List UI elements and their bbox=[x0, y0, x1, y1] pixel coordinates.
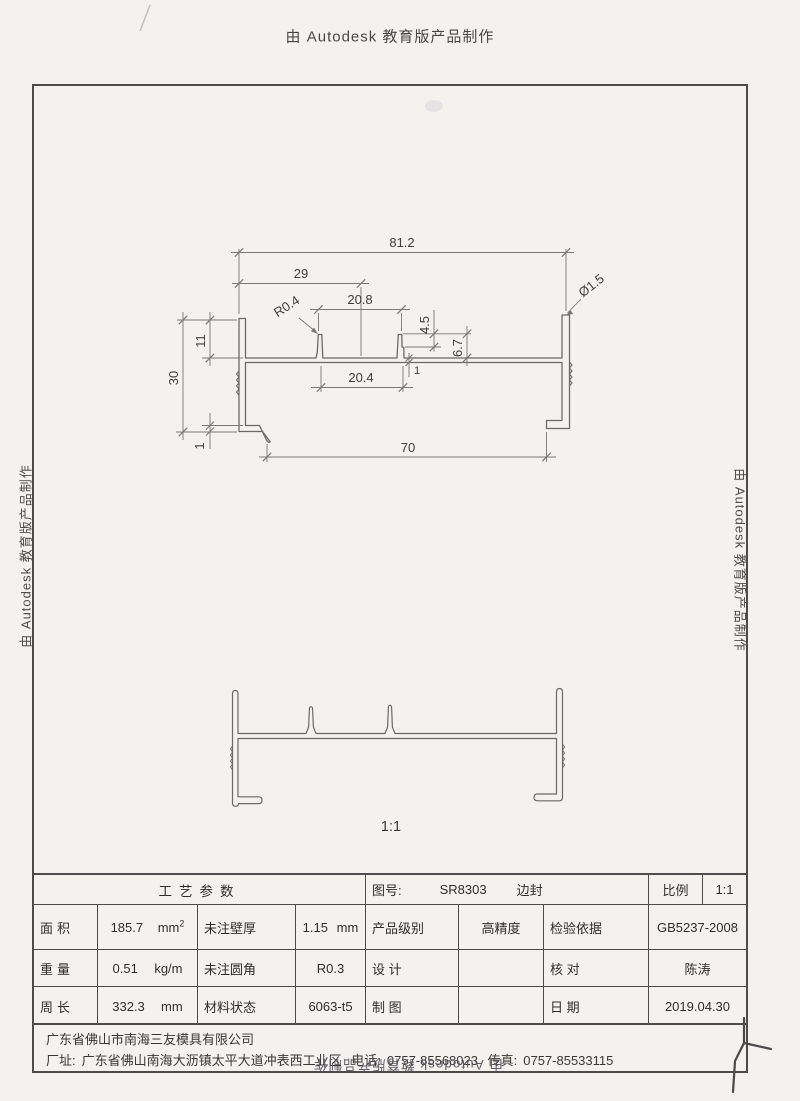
dim-label-rib-step-height: 4.5 bbox=[417, 316, 432, 334]
material-state-value: 6063-t5 bbox=[308, 999, 352, 1014]
date-label: 日 期 bbox=[550, 997, 580, 1016]
dim-label-bottom-width: 70 bbox=[401, 440, 415, 455]
dim-hole-diameter: Ø1.5 bbox=[566, 271, 607, 316]
dim-label-channel-inner-width: 20.4 bbox=[348, 370, 373, 385]
area-value: 185.7 bbox=[111, 920, 144, 935]
designer-label: 设 计 bbox=[372, 959, 402, 978]
wall-thickness-unit: mm bbox=[337, 920, 359, 935]
cell-design-label: 设 计 bbox=[366, 950, 459, 987]
cell-perimeter-label: 周长 bbox=[34, 987, 98, 1025]
perimeter-label: 周长 bbox=[40, 997, 74, 1016]
cell-process-params: 工艺参数 bbox=[34, 875, 366, 905]
cell-grade-label: 产品级别 bbox=[366, 905, 459, 950]
dim-channel-outer-width: 20.8 bbox=[310, 292, 410, 331]
dim-corner-radius: R0.4 bbox=[271, 292, 318, 334]
cell-weight-label: 重量 bbox=[34, 950, 98, 987]
wall-thickness-value: 1.15 bbox=[303, 920, 328, 935]
wall-thickness-label: 未注壁厚 bbox=[204, 918, 256, 937]
inspection-basis-value: GB5237-2008 bbox=[657, 920, 738, 935]
cell-scale-label: 比例 bbox=[649, 875, 703, 905]
address-label: 厂址: bbox=[46, 1053, 76, 1068]
profile-actual-size-view bbox=[231, 689, 565, 807]
cell-wall-label: 未注壁厚 bbox=[198, 905, 296, 950]
date-value: 2019.04.30 bbox=[665, 999, 730, 1014]
cell-date-value: 2019.04.30 bbox=[649, 987, 746, 1025]
dim-label-overall-width: 81.2 bbox=[389, 235, 414, 250]
view-scale-caption: 1:1 bbox=[381, 819, 401, 835]
process-params-label: 工艺参数 bbox=[159, 880, 241, 900]
cell-fillet-value: R0.3 bbox=[296, 950, 366, 987]
checker-label: 核 对 bbox=[550, 959, 580, 978]
cell-inspect-value: GB5237-2008 bbox=[649, 905, 746, 950]
product-grade-value: 高精度 bbox=[481, 918, 520, 937]
dim-label-rib-height: 6.7 bbox=[450, 339, 465, 357]
dim-label-corner-radius: R0.4 bbox=[271, 292, 302, 320]
dim-label-flange-height: 30 bbox=[166, 371, 181, 385]
drawing-no-label: 图号: bbox=[372, 880, 402, 899]
weight-value: 0.51 bbox=[113, 961, 138, 976]
company-name: 广东省佛山市南海三友模具有限公司 bbox=[46, 1029, 748, 1050]
area-label: 面积 bbox=[40, 918, 74, 937]
dimensions: 81.2 29 20.8 R0.4 4.5 6.7 bbox=[166, 235, 607, 462]
address-value: 广东省佛山南海大沥镇太平大道冲表西工业区 bbox=[82, 1053, 342, 1068]
scale-label: 比例 bbox=[662, 880, 688, 899]
dim-label-channel-center-offset: 29 bbox=[294, 266, 308, 281]
dim-rib-height: 6.7 bbox=[450, 326, 471, 366]
cell-material-label: 材料状态 bbox=[198, 987, 296, 1025]
cell-draft-value bbox=[459, 987, 544, 1025]
profile-outline-1to1 bbox=[233, 689, 563, 807]
fillet-value: R0.3 bbox=[317, 961, 344, 976]
scale-value: 1:1 bbox=[715, 882, 733, 897]
dim-channel-inner-width: 20.4 bbox=[311, 366, 413, 392]
dim-label-web-thickness: 1 bbox=[414, 365, 420, 377]
title-block-table: 工艺参数 图号: SR8303 边封 比例 1:1 面积 185.7 mm2 未… bbox=[32, 873, 748, 1025]
cell-grade-value: 高精度 bbox=[459, 905, 544, 950]
dim-bottom-width: 70 bbox=[259, 432, 556, 462]
dim-web-thickness: 1 bbox=[406, 353, 421, 377]
product-grade-label: 产品级别 bbox=[372, 918, 424, 937]
cell-area-label: 面积 bbox=[34, 905, 98, 950]
cell-check-label: 核 对 bbox=[544, 950, 649, 987]
dim-label-upper-flange-height: 11 bbox=[193, 334, 208, 348]
checker-value: 陈涛 bbox=[684, 959, 710, 978]
cell-perimeter-value: 332.3 mm bbox=[98, 987, 198, 1025]
dim-upper-flange-height: 11 bbox=[177, 312, 243, 366]
cell-inspect-label: 检验依据 bbox=[544, 905, 649, 950]
weight-unit: kg/m bbox=[154, 961, 182, 976]
fax-value: 0757-85533115 bbox=[523, 1053, 613, 1068]
cell-date-label: 日 期 bbox=[544, 987, 649, 1025]
cell-draft-label: 制 图 bbox=[366, 987, 459, 1025]
dim-label-channel-outer-width: 20.8 bbox=[347, 292, 372, 307]
cell-fillet-label: 未注圆角 bbox=[198, 950, 296, 987]
cell-drawing-no: 图号: SR8303 边封 bbox=[366, 875, 649, 905]
cell-check-value: 陈涛 bbox=[649, 950, 746, 987]
drawing-no-value: SR8303 bbox=[440, 882, 487, 897]
perimeter-unit: mm bbox=[161, 999, 183, 1014]
weight-label: 重量 bbox=[40, 959, 74, 978]
draftsman-label: 制 图 bbox=[372, 997, 402, 1016]
perimeter-value: 332.3 bbox=[112, 999, 145, 1014]
smudge bbox=[425, 100, 443, 112]
cell-area-value: 185.7 mm2 bbox=[98, 905, 198, 950]
fillet-label: 未注圆角 bbox=[204, 959, 256, 978]
dim-channel-center-offset: 29 bbox=[232, 266, 369, 356]
cell-wall-value: 1.15 mm bbox=[296, 905, 366, 950]
cell-material-value: 6063-t5 bbox=[296, 987, 366, 1025]
cell-scale-value: 1:1 bbox=[703, 875, 746, 905]
dim-foot-thickness: 1 bbox=[192, 413, 243, 450]
inspection-basis-label: 检验依据 bbox=[550, 918, 602, 937]
dim-label-foot-thickness: 1 bbox=[192, 442, 207, 449]
cell-design-value bbox=[459, 950, 544, 987]
dim-flange-height: 30 bbox=[166, 312, 237, 440]
cell-weight-value: 0.51 kg/m bbox=[98, 950, 198, 987]
dim-label-hole-diameter: Ø1.5 bbox=[576, 271, 607, 300]
pen-mark-top-left bbox=[140, 5, 150, 31]
area-unit: mm2 bbox=[158, 920, 185, 935]
autodesk-watermark-bottom-inverted: 由 Autodesk 教育版产品制作 bbox=[313, 1056, 503, 1076]
product-name: 边封 bbox=[517, 880, 543, 899]
material-state-label: 材料状态 bbox=[204, 997, 256, 1016]
